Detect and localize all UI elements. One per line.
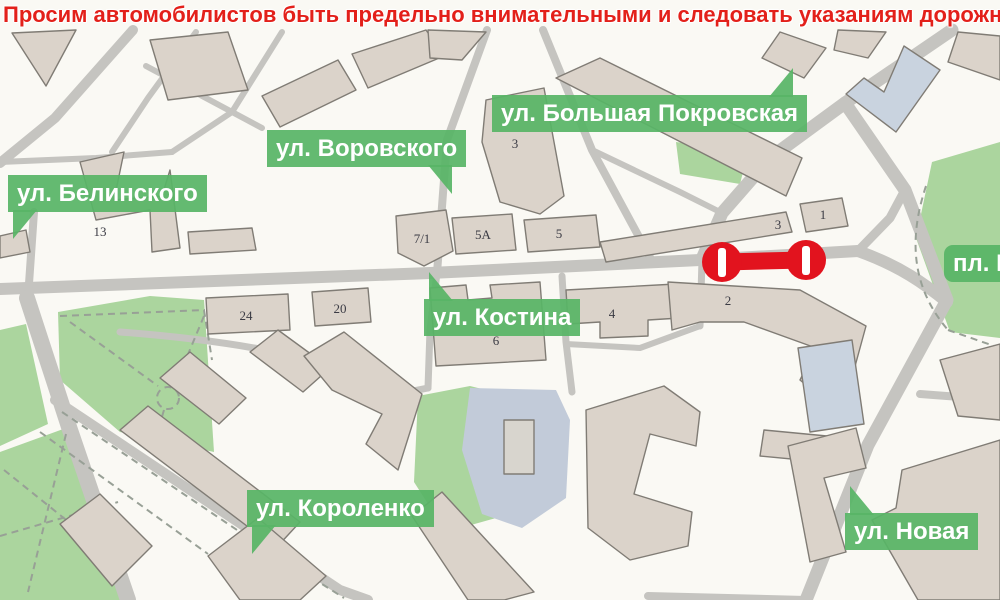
building-number: 1 [820,207,827,222]
building-number: 20 [334,301,347,316]
street-label-kostina: ул. Костина [424,299,580,336]
street-label-belinskogo: ул. Белинского [8,175,207,212]
no-entry-icon [718,248,726,277]
warning-banner: Просим автомобилистов быть предельно вни… [0,0,1000,30]
building-number: 3 [775,217,782,232]
building-number: 5А [475,227,492,242]
building-number: 5 [556,226,563,241]
warning-text: Просим автомобилистов быть предельно вни… [0,0,1000,28]
building-number: 13 [94,224,107,239]
street-label-korolenko: ул. Короленко [247,490,434,527]
building-number: 4 [609,306,616,321]
building-number: 2 [725,293,732,308]
square-label-pl-m: пл. М [944,245,1000,282]
street-label-vorovskogo: ул. Воровского [267,130,466,167]
building-number: 7/1 [414,231,431,246]
street-label-pokrovskaya: ул. Большая Покровская [492,95,807,132]
road-closure-marker [702,240,826,282]
building-number: 24 [240,308,254,323]
no-entry-icon [802,246,810,275]
street-label-novaya: ул. Новая [845,513,978,550]
map-screenshot: 13 3 7/1 5А 5 3 1 24 20 6 4 2 ул. Белинс… [0,0,1000,600]
building-number: 3 [512,136,519,151]
